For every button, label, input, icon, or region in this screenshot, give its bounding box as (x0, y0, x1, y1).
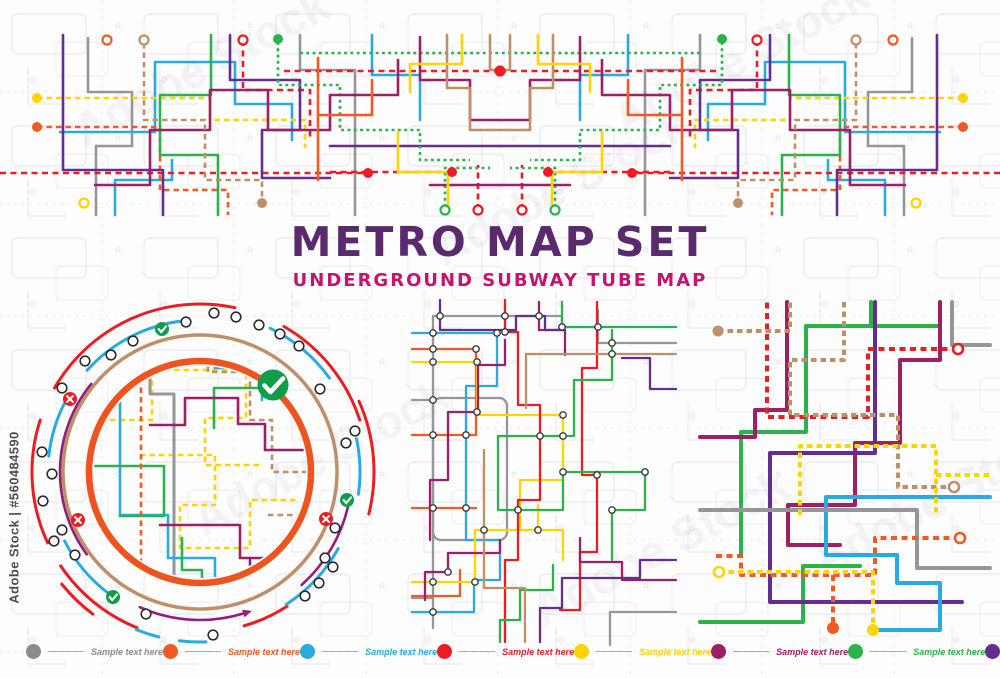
legend-label: Sample text here (91, 647, 163, 657)
metro-lines (0, 35, 500, 215)
metro-map-set-poster: Adobe Stock Adobe Stock Adobe Stock Adob… (0, 0, 1000, 678)
legend-item: Sample text here (437, 644, 574, 659)
legend-line (870, 651, 906, 652)
top-metro-band (0, 0, 1000, 220)
metro-lines (412, 300, 676, 645)
outer-arcs (32, 304, 374, 642)
legend-item: Sample text here (985, 644, 1000, 659)
legend-dot (300, 644, 315, 659)
x-badge-icon (63, 392, 77, 406)
legend-label: Sample text here (228, 647, 300, 657)
grid-metro-map (386, 294, 686, 654)
legend-item: Sample text here (711, 644, 848, 659)
legend-item: Sample text here (300, 644, 437, 659)
legend-dot (848, 644, 863, 659)
legend-item: Sample text here (574, 644, 711, 659)
legend-label: Sample text here (365, 647, 437, 657)
legend: Sample text here Sample text here Sample… (26, 644, 962, 659)
x-badge-icon (319, 512, 333, 526)
stock-watermark: Adobe Stock | #560484590 (7, 408, 22, 628)
legend-item: Sample text here (163, 644, 300, 659)
legend-item: Sample text here (26, 644, 163, 659)
legend-dot (437, 644, 452, 659)
legend-dot (574, 644, 589, 659)
x-badge-icon (71, 513, 85, 527)
legend-dot (163, 644, 178, 659)
legend-dot (26, 644, 41, 659)
legend-line (185, 651, 221, 652)
legend-line (322, 651, 358, 652)
legend-line (733, 651, 769, 652)
metro-lines (700, 302, 990, 630)
legend-label: Sample text here (639, 647, 711, 657)
legend-label: Sample text here (502, 647, 574, 657)
endpoint-markers (713, 326, 966, 637)
legend-line (596, 651, 632, 652)
check-badge-icon (155, 322, 169, 336)
legend-item: Sample text here (848, 644, 985, 659)
page-title: METRO MAP SET (0, 218, 1000, 266)
legend-label: Sample text here (776, 647, 848, 657)
legend-dot (711, 644, 726, 659)
check-badge-icon (340, 493, 354, 507)
legend-line (459, 651, 495, 652)
legend-line (48, 651, 84, 652)
arrow-icon (242, 610, 252, 618)
check-badge-icon (258, 370, 289, 401)
check-badge-icon (106, 590, 120, 604)
legend-label: Sample text here (913, 647, 985, 657)
legend-dot (985, 644, 1000, 659)
route-metro-map (695, 296, 995, 641)
circular-metro-map (0, 274, 400, 674)
